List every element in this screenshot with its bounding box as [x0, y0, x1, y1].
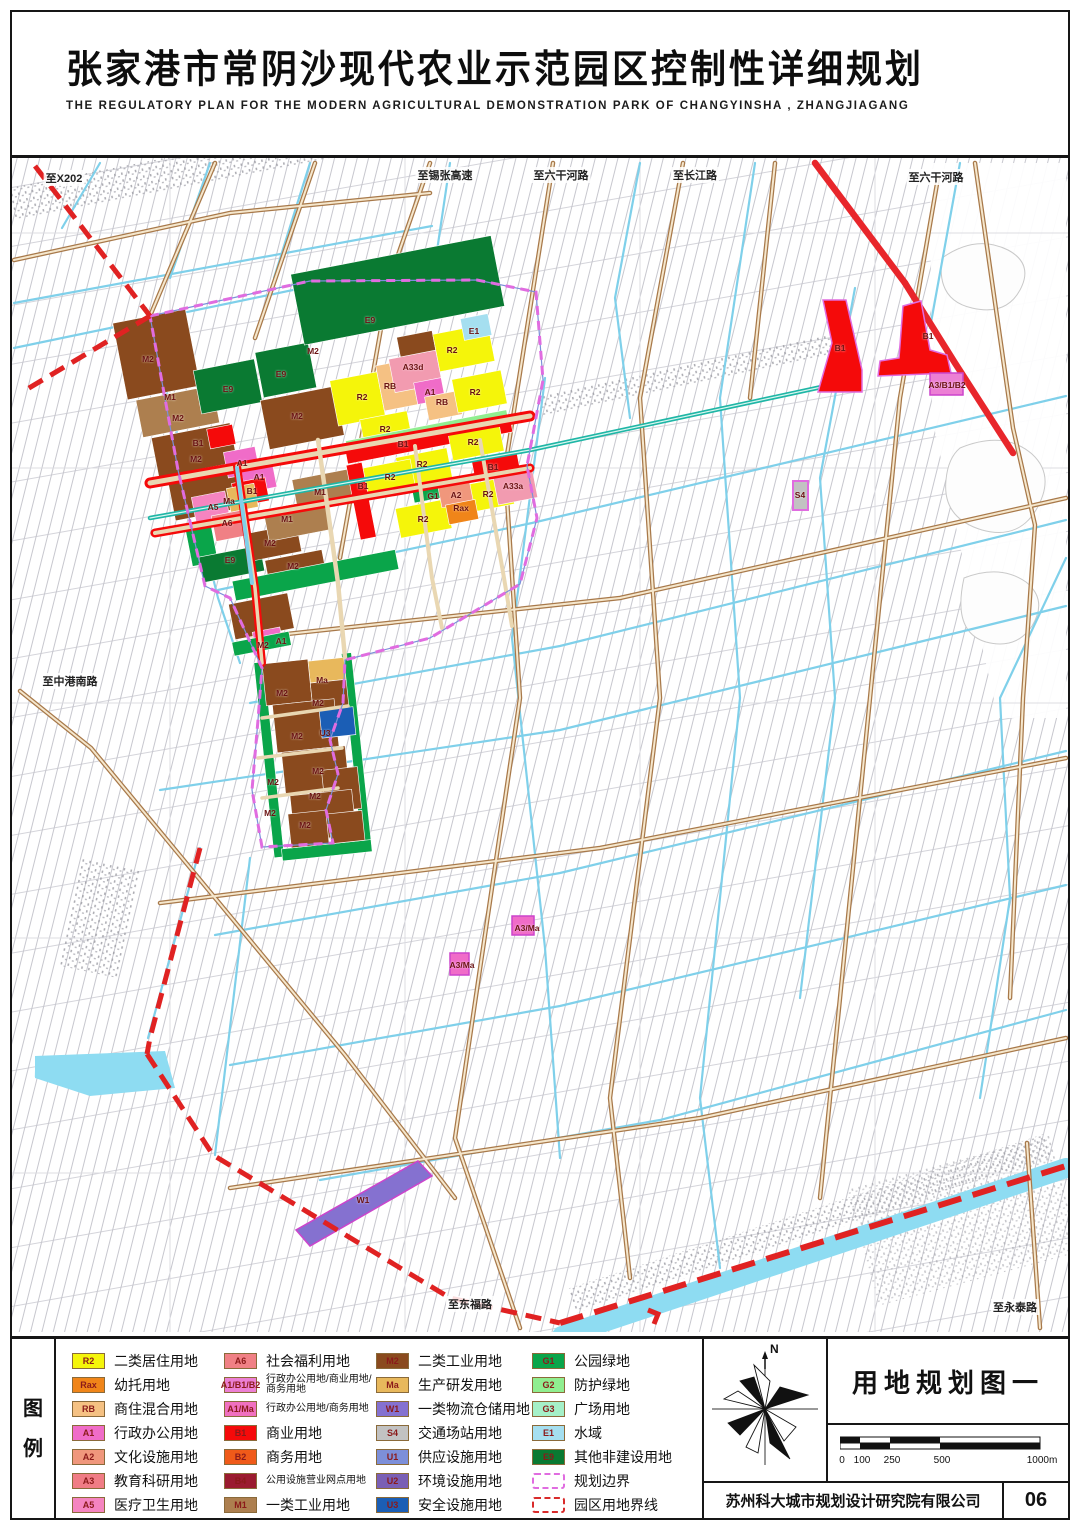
- legend-label: 教育科研用地: [114, 1474, 198, 1488]
- legend-strip: 图例 R2二类居住用地Rax幼托用地RB商住混合用地A1行政办公用地A2文化设施…: [12, 1336, 1068, 1518]
- zone-label: M2: [257, 640, 269, 650]
- zone-label: W1: [357, 1195, 370, 1205]
- legend-swatch: A6: [224, 1353, 257, 1369]
- compass-n-label: N: [770, 1342, 779, 1356]
- legend-entry: Rax幼托用地: [72, 1373, 224, 1397]
- legend-entry: A2文化设施用地: [72, 1445, 224, 1469]
- legend-column: A6社会福利用地A1/B1/B2行政办公用地/商业用地/商务用地A1/Ma行政办…: [224, 1349, 376, 1518]
- legend-entry: A6社会福利用地: [224, 1349, 376, 1373]
- zone-label: B1: [193, 438, 204, 448]
- legend-swatch: U2: [376, 1473, 409, 1489]
- legend-swatch: A3: [72, 1473, 105, 1489]
- legend-label: 商业用地: [266, 1426, 322, 1440]
- zone-label: U3: [320, 728, 331, 738]
- road-edge-label: 至长江路: [671, 167, 719, 183]
- legend-column: R2二类居住用地Rax幼托用地RB商住混合用地A1行政办公用地A2文化设施用地A…: [72, 1349, 224, 1518]
- legend-entries: R2二类居住用地Rax幼托用地RB商住混合用地A1行政办公用地A2文化设施用地A…: [56, 1339, 702, 1518]
- legend-label: 防护绿地: [574, 1378, 630, 1392]
- legend-label: 生产研发用地: [418, 1378, 502, 1392]
- legend-entry: A5医疗卫生用地: [72, 1493, 224, 1517]
- scale-tick-label: 500: [934, 1455, 951, 1466]
- legend-entry: W1一类物流仓储用地: [376, 1397, 532, 1421]
- legend-label: 公园绿地: [574, 1354, 630, 1368]
- legend-swatch: E9: [532, 1449, 565, 1465]
- legend-column: G1公园绿地G2防护绿地G3广场用地E1水域E9其他非建设用地规划边界园区用地界…: [532, 1349, 700, 1518]
- legend-label: 园区用地界线: [574, 1498, 658, 1512]
- zone-label: Ma: [223, 496, 235, 506]
- zone-label: R2: [483, 489, 494, 499]
- zone-label: M2: [309, 791, 321, 801]
- zone-label: E9: [223, 384, 233, 394]
- legend-entry: A1/B1/B2行政办公用地/商业用地/商务用地: [224, 1373, 376, 1397]
- legend-entry: E9其他非建设用地: [532, 1445, 700, 1469]
- legend-swatch: [532, 1497, 565, 1513]
- legend-swatch: RB: [72, 1401, 105, 1417]
- zone-label: RB: [436, 397, 448, 407]
- legend-entry: G2防护绿地: [532, 1373, 700, 1397]
- zone-label: M2: [276, 688, 288, 698]
- zone-label: M2: [172, 413, 184, 423]
- legend-label: 广场用地: [574, 1402, 630, 1416]
- zone-label: B1: [923, 331, 934, 341]
- legend-swatch: M2: [376, 1353, 409, 1369]
- zone-label: B1: [358, 481, 369, 491]
- legend-label: 一类工业用地: [266, 1498, 350, 1512]
- zone-label: E9: [225, 555, 235, 565]
- road-edge-label: 至X202: [44, 170, 85, 186]
- zone-label: A6: [222, 518, 233, 528]
- legend-entry: 规划边界: [532, 1469, 700, 1493]
- legend-swatch: A2: [72, 1449, 105, 1465]
- page-number: 06: [1004, 1483, 1068, 1518]
- legend-title: 图例: [21, 1389, 45, 1469]
- legend-entry: U2环境设施用地: [376, 1469, 532, 1493]
- legend-entry: U3安全设施用地: [376, 1493, 532, 1517]
- zone-label: M1: [281, 514, 293, 524]
- zone-label: B1: [488, 462, 499, 472]
- compass-cell: N: [704, 1339, 828, 1481]
- legend-label: 二类工业用地: [418, 1354, 502, 1368]
- zone-label: A1: [276, 636, 287, 646]
- legend-entry: A3教育科研用地: [72, 1469, 224, 1493]
- legend-entry: G1公园绿地: [532, 1349, 700, 1373]
- zone-label: B1: [398, 439, 409, 449]
- zone-label: A2: [451, 490, 462, 500]
- legend-entry: B1商业用地: [224, 1421, 376, 1445]
- zone-label: R2: [418, 514, 429, 524]
- legend-label: 规划边界: [574, 1474, 630, 1488]
- legend-entry: A1行政办公用地: [72, 1421, 224, 1445]
- legend-entry: R2二类居住用地: [72, 1349, 224, 1373]
- road-edge-label: 至永泰路: [991, 1299, 1039, 1315]
- zone-label: M2: [142, 354, 154, 364]
- zone-label: S4: [795, 490, 805, 500]
- legend-label: 安全设施用地: [418, 1498, 502, 1512]
- legend-entry: RB商住混合用地: [72, 1397, 224, 1421]
- zone-label: A33a: [503, 481, 523, 491]
- zone-label: M2: [291, 411, 303, 421]
- legend-entry: S4交通场站用地: [376, 1421, 532, 1445]
- zone-label: R2: [447, 345, 458, 355]
- plan-sheet-title: 用地规划图一: [828, 1339, 1068, 1425]
- compass-rose: N: [704, 1339, 826, 1479]
- zone-label: R2: [357, 392, 368, 402]
- legend-swatch: U3: [376, 1497, 409, 1513]
- header: 张家港市常阴沙现代农业示范园区控制性详细规划 THE REGULATORY PL…: [12, 12, 1068, 158]
- legend-entry: G3广场用地: [532, 1397, 700, 1421]
- zone-label: M2: [190, 454, 202, 464]
- legend-label: 交通场站用地: [418, 1426, 502, 1440]
- page-title: 张家港市常阴沙现代农业示范园区控制性详细规划: [66, 38, 1068, 94]
- map-label-layer: M2M1M2M2B1E9E9E9M2A33dR2E1M2R2RBR2RBA1R2…: [12, 158, 1068, 1336]
- road-edge-label: 至中港南路: [41, 673, 100, 689]
- zone-label: G1: [427, 491, 438, 501]
- road-edge-label: 至东福路: [446, 1296, 494, 1312]
- legend-swatch: E1: [532, 1425, 565, 1441]
- legend-swatch: M1: [224, 1497, 257, 1513]
- legend-entry: B4公用设施营业网点用地: [224, 1469, 376, 1493]
- zone-label: A1: [254, 472, 265, 482]
- zone-label: A1: [425, 387, 436, 397]
- legend-label: 其他非建设用地: [574, 1450, 672, 1464]
- road-edge-label: 至锡张高速: [416, 167, 475, 183]
- zone-label: R2: [417, 459, 428, 469]
- legend-swatch: A1/B1/B2: [224, 1377, 257, 1393]
- legend-swatch: R2: [72, 1353, 105, 1369]
- legend-label: 社会福利用地: [266, 1354, 350, 1368]
- legend-label: 行政办公用地/商业用地/商务用地: [266, 1375, 376, 1395]
- legend-swatch: G2: [532, 1377, 565, 1393]
- zone-label: M2: [264, 808, 276, 818]
- zone-label: E1: [469, 326, 479, 336]
- legend-label: 行政办公用地: [114, 1426, 198, 1440]
- legend-column: M2二类工业用地Ma生产研发用地W1一类物流仓储用地S4交通场站用地U1供应设施…: [376, 1349, 532, 1518]
- legend-label: 一类物流仓储用地: [418, 1402, 530, 1416]
- legend-swatch: A5: [72, 1497, 105, 1513]
- company-name: 苏州科大城市规划设计研究院有限公司: [704, 1483, 1004, 1518]
- zone-label: E9: [276, 369, 286, 379]
- legend-swatch: B2: [224, 1449, 257, 1465]
- zone-label: B1: [247, 486, 258, 496]
- zone-label: M2: [291, 731, 303, 741]
- sheet-frame: 张家港市常阴沙现代农业示范园区控制性详细规划 THE REGULATORY PL…: [10, 10, 1070, 1520]
- zone-label: R2: [385, 472, 396, 482]
- scale-bar-cell: 01002505001000m: [828, 1425, 1068, 1481]
- legend-swatch: G3: [532, 1401, 565, 1417]
- legend-swatch: B1: [224, 1425, 257, 1441]
- legend-swatch: A1: [72, 1425, 105, 1441]
- road-edge-label: 至六干河路: [907, 169, 966, 185]
- zone-label: B1: [835, 343, 846, 353]
- legend-label: 供应设施用地: [418, 1450, 502, 1464]
- legend-label: 公用设施营业网点用地: [266, 1476, 366, 1486]
- legend-label: 商务用地: [266, 1450, 322, 1464]
- legend-swatch: B4: [224, 1473, 257, 1489]
- legend-swatch: A1/Ma: [224, 1401, 257, 1417]
- legend-entry: M1一类工业用地: [224, 1493, 376, 1517]
- zone-label: R2: [380, 424, 391, 434]
- zone-label: A33d: [403, 362, 424, 372]
- zone-label: Ma: [316, 675, 328, 685]
- zone-label: RB: [384, 381, 396, 391]
- legend-entry: B2商务用地: [224, 1445, 376, 1469]
- zone-label: M2: [287, 561, 299, 571]
- legend-swatch: U1: [376, 1449, 409, 1465]
- title-block: N 用地规划图一: [702, 1339, 1068, 1518]
- scale-tick-label: 250: [884, 1455, 901, 1466]
- legend-swatch: G1: [532, 1353, 565, 1369]
- legend-entry: A1/Ma行政办公用地/商务用地: [224, 1397, 376, 1421]
- zone-label: R2: [470, 387, 481, 397]
- zone-label: M2: [312, 766, 324, 776]
- plan-map[interactable]: M2M1M2M2B1E9E9E9M2A33dR2E1M2R2RBR2RBA1R2…: [12, 158, 1068, 1336]
- zone-label: A3/Ma: [514, 923, 539, 933]
- legend-entry: Ma生产研发用地: [376, 1373, 532, 1397]
- legend-label: 幼托用地: [114, 1378, 170, 1392]
- scale-tick-label: 1000m: [1027, 1455, 1058, 1466]
- zone-label: R2: [468, 437, 479, 447]
- legend-entry: U1供应设施用地: [376, 1445, 532, 1469]
- legend-label: 环境设施用地: [418, 1474, 502, 1488]
- page-subtitle: THE REGULATORY PLAN FOR THE MODERN AGRIC…: [66, 100, 1068, 112]
- zone-label: A3/Ma: [449, 960, 474, 970]
- zone-label: M2: [307, 346, 319, 356]
- legend-label: 医疗卫生用地: [114, 1498, 198, 1512]
- scale-tick-label: 0: [839, 1455, 845, 1466]
- zone-label: A3/B1/B2: [928, 380, 965, 390]
- road-edge-label: 至六干河路: [532, 167, 591, 183]
- legend-entry: E1水域: [532, 1421, 700, 1445]
- zone-label: M2: [267, 777, 279, 787]
- legend-label: 行政办公用地/商务用地: [266, 1404, 369, 1414]
- scale-tick-label: 100: [854, 1455, 871, 1466]
- plan-sheet: 张家港市常阴沙现代农业示范园区控制性详细规划 THE REGULATORY PL…: [0, 0, 1080, 1530]
- legend-entry: M2二类工业用地: [376, 1349, 532, 1373]
- legend-label: 商住混合用地: [114, 1402, 198, 1416]
- legend-title-cell: 图例: [12, 1339, 56, 1518]
- zone-label: Rax: [453, 503, 469, 513]
- zone-label: M2: [312, 698, 324, 708]
- legend-swatch: W1: [376, 1401, 409, 1417]
- legend-entry: 园区用地界线: [532, 1493, 700, 1517]
- legend-swatch: Rax: [72, 1377, 105, 1393]
- zone-label: A5: [208, 502, 219, 512]
- zone-label: M1: [314, 487, 326, 497]
- zone-label: M2: [264, 538, 276, 548]
- zone-label: E9: [365, 315, 375, 325]
- legend-swatch: S4: [376, 1425, 409, 1441]
- zone-label: M2: [299, 820, 311, 830]
- legend-label: 二类居住用地: [114, 1354, 198, 1368]
- zone-label: A1: [237, 458, 248, 468]
- legend-label: 文化设施用地: [114, 1450, 198, 1464]
- zone-label: M1: [164, 392, 176, 402]
- legend-swatch: [532, 1473, 565, 1489]
- legend-label: 水域: [574, 1426, 602, 1440]
- legend-swatch: Ma: [376, 1377, 409, 1393]
